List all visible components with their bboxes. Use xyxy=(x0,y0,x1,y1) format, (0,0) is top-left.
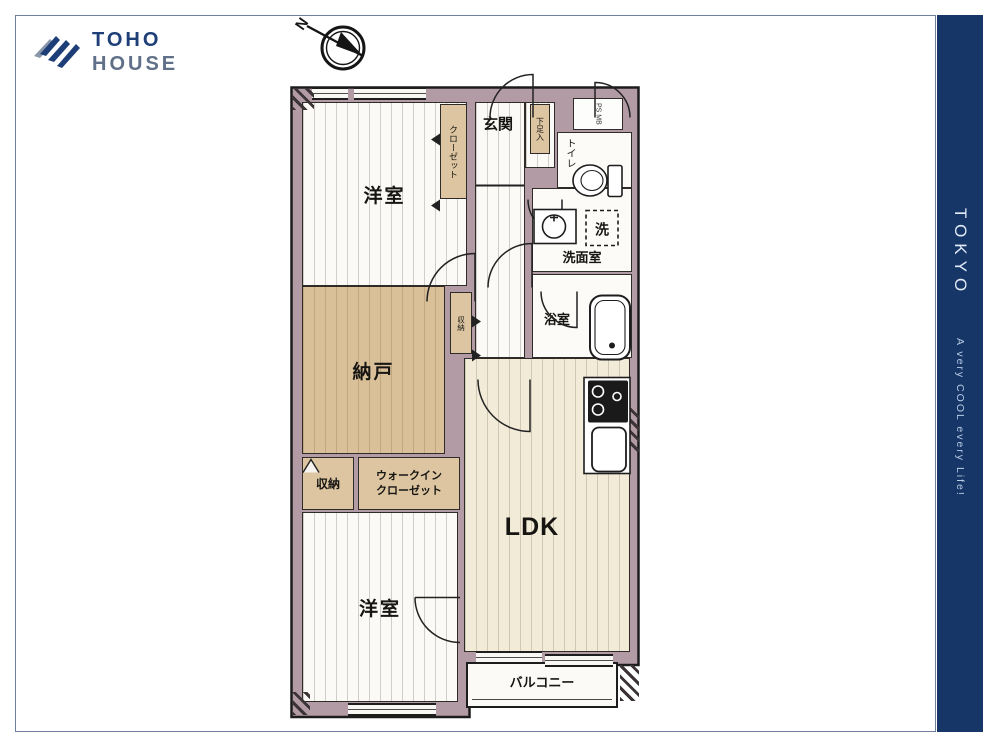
page: TOHO HOUSE N TOKYO A very COOL every Lif… xyxy=(0,0,1000,750)
room-genkan-label: 玄関 xyxy=(483,113,513,134)
balcony-rail-line xyxy=(472,699,612,700)
room-shuno-label: 収納 xyxy=(316,475,340,492)
room-ldk-label: LDK xyxy=(505,513,559,542)
room-bedroom-bottom-label: 洋室 xyxy=(359,594,401,621)
sidebar-title: TOKYO xyxy=(950,208,970,297)
room-nando: 納戸 xyxy=(302,286,445,454)
compass-north-label: N xyxy=(292,15,312,34)
sidebar-tagline: A very COOL every Life! xyxy=(954,338,966,497)
wall-hatch xyxy=(626,408,639,452)
room-ldk: LDK xyxy=(464,358,630,652)
room-bathroom-label: 浴室 xyxy=(544,309,570,328)
compass-icon: N xyxy=(291,12,383,80)
hallway-genkan: 玄関 xyxy=(475,102,525,358)
room-washroom-label: 洗面室 xyxy=(562,247,601,266)
balcony-label: バルコニー xyxy=(510,672,575,691)
brand-mark-icon xyxy=(30,26,86,74)
room-bathroom: 浴室 xyxy=(532,274,632,358)
floor-plan: 洋室 クローゼット 玄関 下足入 PS MB トイレ 洗面室 浴室 納戸 収納 xyxy=(290,86,640,732)
room-bedroom-top-label: 洋室 xyxy=(363,181,405,208)
window xyxy=(354,87,426,100)
room-closet-top-label: クローゼット xyxy=(447,125,460,179)
room-bedroom-bottom: 洋室 xyxy=(302,512,458,702)
compass: N xyxy=(291,12,383,85)
room-wic: ウォークイン クローゼット xyxy=(358,457,460,510)
window xyxy=(348,703,436,716)
brand-name-line1: TOHO xyxy=(92,28,178,52)
room-toilet-label: トイレ xyxy=(562,138,577,168)
room-hall-closet: 収納 xyxy=(450,292,472,354)
brand-text: TOHO HOUSE xyxy=(92,28,178,76)
room-shoe-cabinet: 下足入 xyxy=(530,104,550,154)
room-hall-closet-label: 収納 xyxy=(456,316,467,331)
room-closet-top: クローゼット xyxy=(440,104,467,199)
sliding-window xyxy=(476,651,542,664)
sliding-window xyxy=(545,654,613,667)
room-shuno: 収納 xyxy=(302,457,354,510)
room-nando-label: 納戸 xyxy=(352,357,394,384)
psmb-box: PS MB xyxy=(573,98,623,130)
wall-hatch xyxy=(292,88,314,110)
window xyxy=(312,87,348,100)
room-shoe-label: 下足入 xyxy=(535,117,546,141)
room-wic-label-line1: ウォークイン xyxy=(376,469,442,484)
brand-logo: TOHO HOUSE xyxy=(30,22,250,82)
room-toilet: トイレ xyxy=(557,132,632,188)
room-wic-label-line2: クローゼット xyxy=(376,484,442,499)
wall-hatch xyxy=(292,692,310,715)
sidebar: TOKYO A very COOL every Life! xyxy=(937,15,983,732)
balcony: バルコニー xyxy=(466,662,618,708)
room-washroom: 洗面室 xyxy=(532,188,632,272)
psmb-label: PS MB xyxy=(595,103,602,125)
wall-hatch xyxy=(620,665,639,701)
brand-name-line2: HOUSE xyxy=(92,52,178,76)
